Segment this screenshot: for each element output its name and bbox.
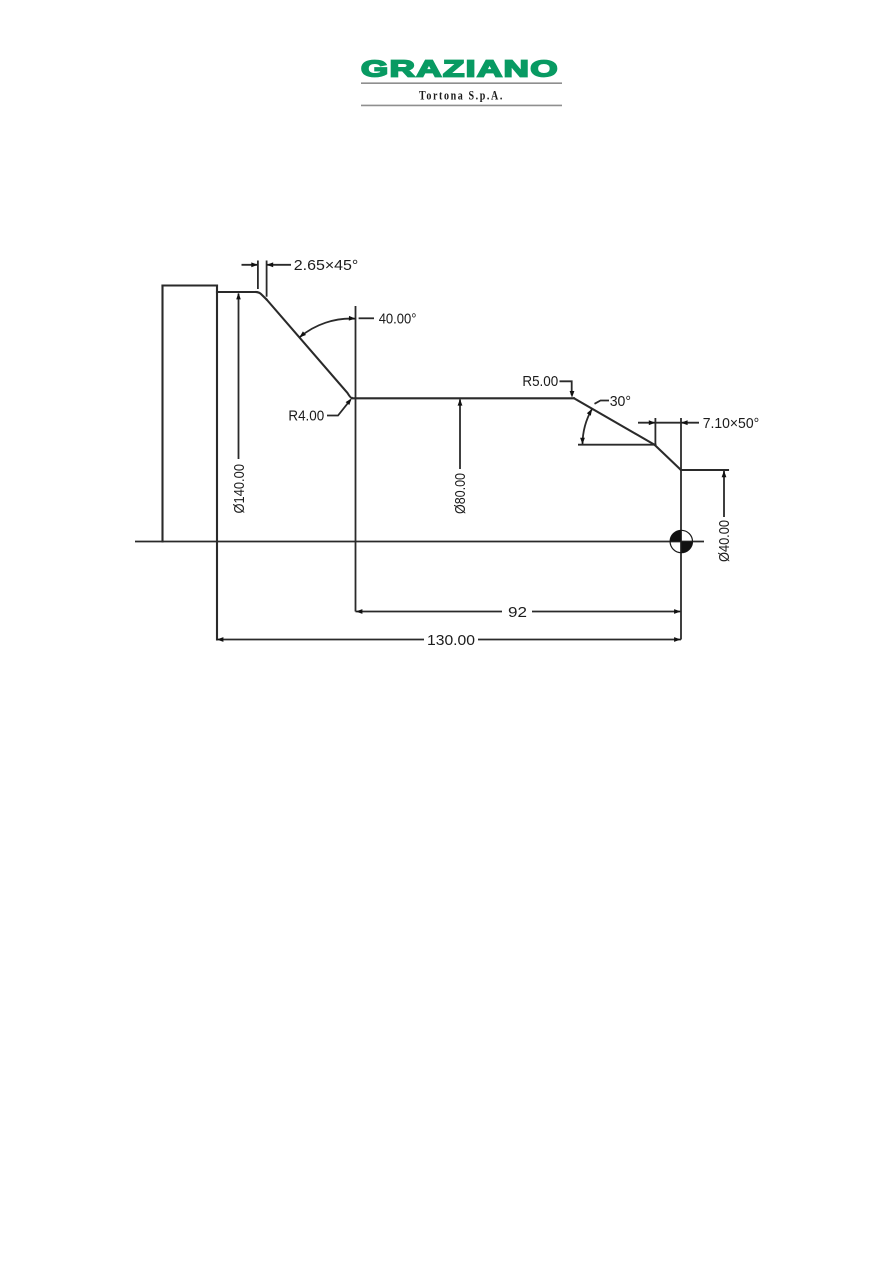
svg-text:R4.00: R4.00 (288, 407, 324, 424)
svg-text:Tortona S.p.A.: Tortona S.p.A. (419, 89, 504, 103)
svg-text:92: 92 (508, 604, 527, 621)
svg-text:Ø80.00: Ø80.00 (452, 473, 469, 514)
svg-text:40.00°: 40.00° (379, 311, 417, 328)
svg-text:R5.00: R5.00 (522, 373, 558, 390)
svg-text:30°: 30° (610, 393, 631, 410)
svg-text:130.00: 130.00 (427, 632, 475, 649)
svg-text:GRAZIANO: GRAZIANO (361, 56, 559, 82)
svg-text:Ø40.00: Ø40.00 (716, 520, 733, 562)
svg-text:7.10×50°: 7.10×50° (703, 415, 760, 432)
svg-text:Ø140.00: Ø140.00 (231, 464, 248, 514)
svg-text:2.65×45°: 2.65×45° (294, 257, 359, 274)
